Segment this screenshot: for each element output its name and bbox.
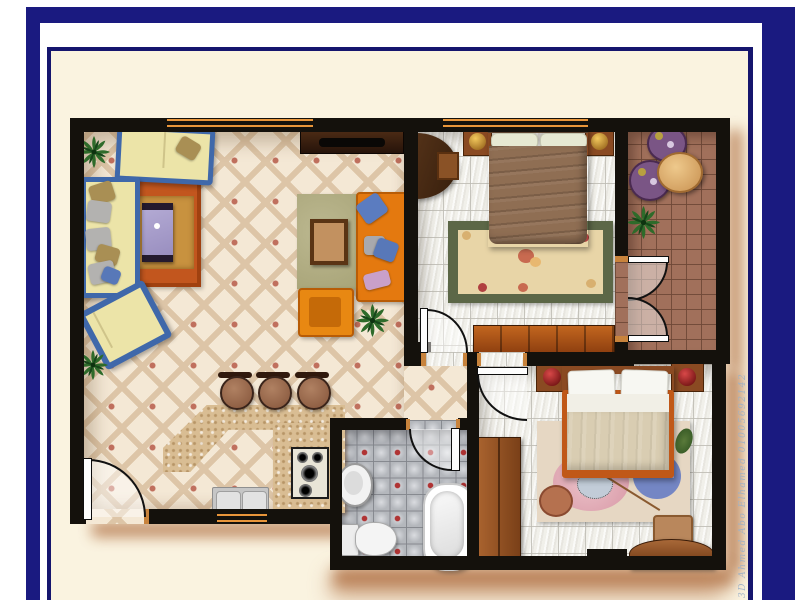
plant-balcony — [627, 206, 660, 239]
bed-blanket — [567, 412, 669, 470]
wall-living-bedroom1 — [404, 118, 418, 354]
bedroom1-desk-chair — [437, 152, 459, 180]
bar-stool — [297, 376, 331, 410]
rug-flower — [586, 279, 596, 288]
wall-right-balcony — [716, 118, 730, 364]
frame-line-top — [47, 47, 753, 51]
balcony-threshold — [615, 262, 628, 336]
balcony-table — [657, 152, 703, 193]
red-bowl — [543, 368, 561, 386]
chair-pattern-dot — [650, 178, 657, 185]
wardrobe-split — [498, 438, 500, 559]
gold-bowl — [469, 133, 486, 150]
bedroom2-wardrobe — [478, 437, 521, 560]
door-jamb — [477, 353, 481, 366]
bathroom-sink — [337, 463, 373, 507]
tv — [319, 138, 385, 147]
rug-flower — [462, 231, 471, 240]
bedroom2-threshold — [479, 352, 525, 366]
bedroom2-door-leaf — [477, 367, 528, 375]
sofa-cushion-divider — [162, 132, 166, 168]
gas-hob — [291, 447, 329, 499]
hallway-floor — [404, 358, 468, 422]
sofa-three-seat — [78, 177, 140, 298]
gold-bowl — [591, 133, 608, 150]
rug-terracotta-pot — [539, 485, 573, 517]
bathtub-basin — [430, 491, 464, 559]
bedroom1-threshold — [426, 352, 466, 366]
sofa-pillow-blue — [355, 192, 389, 226]
olive-rug — [297, 194, 357, 289]
plan-shadow-right-top — [728, 130, 742, 370]
sofa-pillow-pink — [362, 269, 391, 291]
sofa-pillow-blue — [372, 237, 400, 263]
wall-bathroom-bottom — [330, 556, 470, 570]
entry-door-leaf — [83, 458, 92, 520]
coffee-table-end — [142, 255, 173, 262]
burner-large — [301, 465, 318, 482]
bar-stool — [220, 376, 254, 410]
frame-band-top — [26, 7, 795, 23]
bedroom1-window — [443, 119, 588, 127]
bedroom1-door-leaf — [420, 308, 428, 353]
toilet-bowl — [355, 522, 397, 556]
wall-right-bedroom2 — [712, 364, 726, 570]
tv-cabinet — [300, 131, 404, 154]
door-jamb — [421, 353, 426, 366]
armchair-seat — [309, 297, 341, 327]
door-jamb — [615, 256, 628, 262]
wall-bedroom1-balcony-top — [615, 118, 628, 262]
bed-sheet — [567, 394, 669, 414]
rug-flower — [478, 283, 487, 292]
red-bowl — [678, 368, 696, 386]
coffee-table — [142, 203, 173, 262]
door-jamb — [523, 353, 527, 366]
wall-left — [70, 118, 84, 524]
wall-bathroom-left — [330, 418, 342, 570]
chair-pattern-dot — [638, 168, 646, 176]
bed-blanket — [489, 146, 587, 244]
coffee-table-end — [142, 203, 173, 210]
bathroom-door-leaf — [451, 428, 460, 471]
bedroom2-nightstand — [671, 362, 704, 392]
square-side-table — [310, 219, 348, 265]
framed-floor-plan-page: { "watermark": { "text": "3D Ahmed Abo E… — [0, 0, 800, 600]
burner — [312, 452, 323, 463]
door-jamb — [615, 336, 628, 342]
door-jamb — [463, 353, 467, 366]
plant-living-right — [356, 304, 389, 337]
balcony-french-door-leaf-bottom — [628, 335, 669, 342]
armchair-orange — [298, 288, 354, 337]
sofa-pillow — [174, 135, 202, 162]
chair-pattern-dot — [667, 141, 674, 148]
plan-shadow-bottom-left — [92, 522, 344, 537]
frame-band-left — [26, 7, 40, 600]
balcony-french-door-leaf-top — [628, 256, 669, 263]
bedroom1-nightstand — [585, 128, 614, 156]
burner — [297, 452, 308, 463]
frame-line-left — [47, 47, 51, 600]
burner — [299, 484, 312, 497]
chair-pattern-dot — [655, 132, 663, 140]
sofa-orange — [356, 192, 408, 302]
kitchen-window — [217, 514, 267, 522]
plan-shadow-soft — [330, 572, 725, 598]
chaise-fold-line — [92, 312, 113, 348]
rug-flower — [530, 257, 541, 267]
living-room-window — [167, 119, 313, 127]
wall-balcony-bottom — [626, 350, 730, 364]
bedroom2-bed — [562, 366, 674, 478]
frame-band-right — [762, 7, 795, 600]
wall-pier — [587, 549, 627, 559]
bedroom1-bed — [488, 126, 588, 247]
artist-watermark: 3D Ahmed Abo Elhamed 01005692142 — [738, 388, 750, 598]
sink-bowl — [344, 471, 363, 495]
sofa-pillow — [86, 199, 113, 223]
rug-flower — [518, 283, 528, 292]
wall-bedroom2-left — [467, 352, 479, 570]
bar-stool — [258, 376, 292, 410]
coffee-table-dot — [154, 223, 160, 229]
